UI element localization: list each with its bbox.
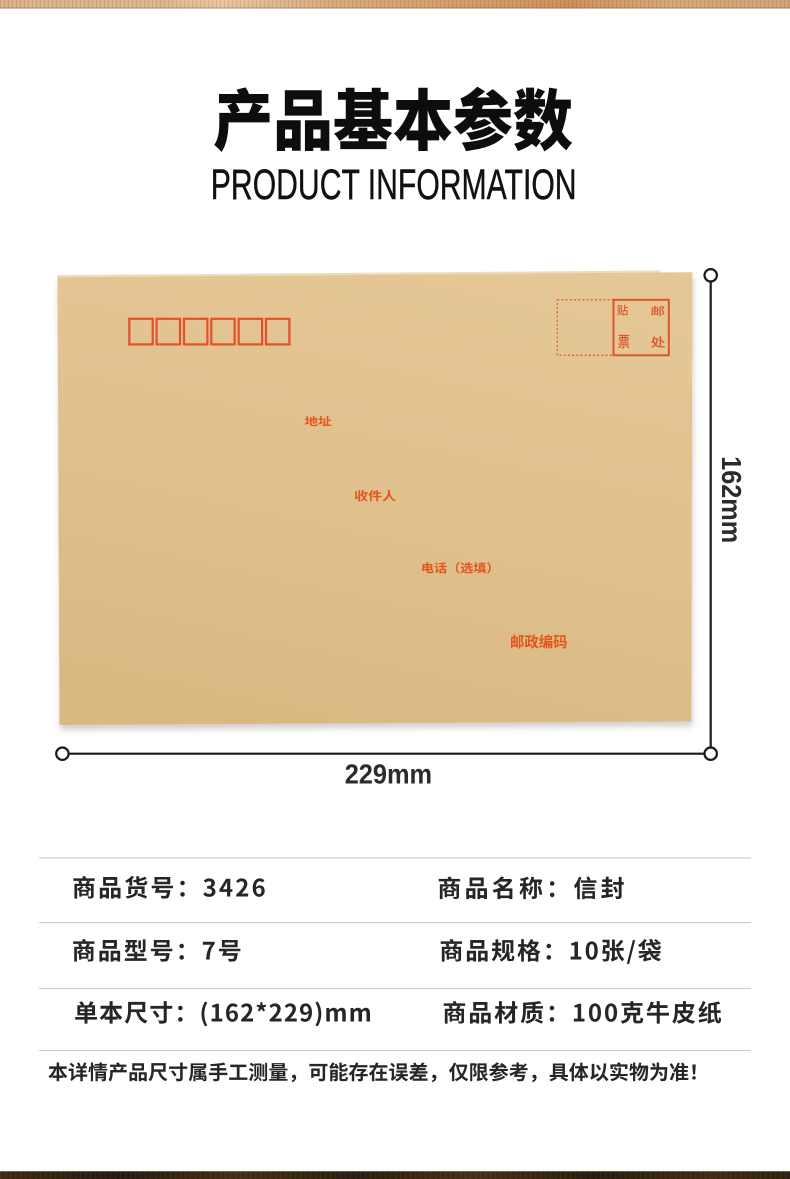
svg-text:229mm: 229mm bbox=[345, 759, 432, 790]
svg-text:162mm: 162mm bbox=[716, 456, 747, 543]
svg-text:PRODUCT INFORMATION: PRODUCT INFORMATION bbox=[211, 161, 577, 209]
